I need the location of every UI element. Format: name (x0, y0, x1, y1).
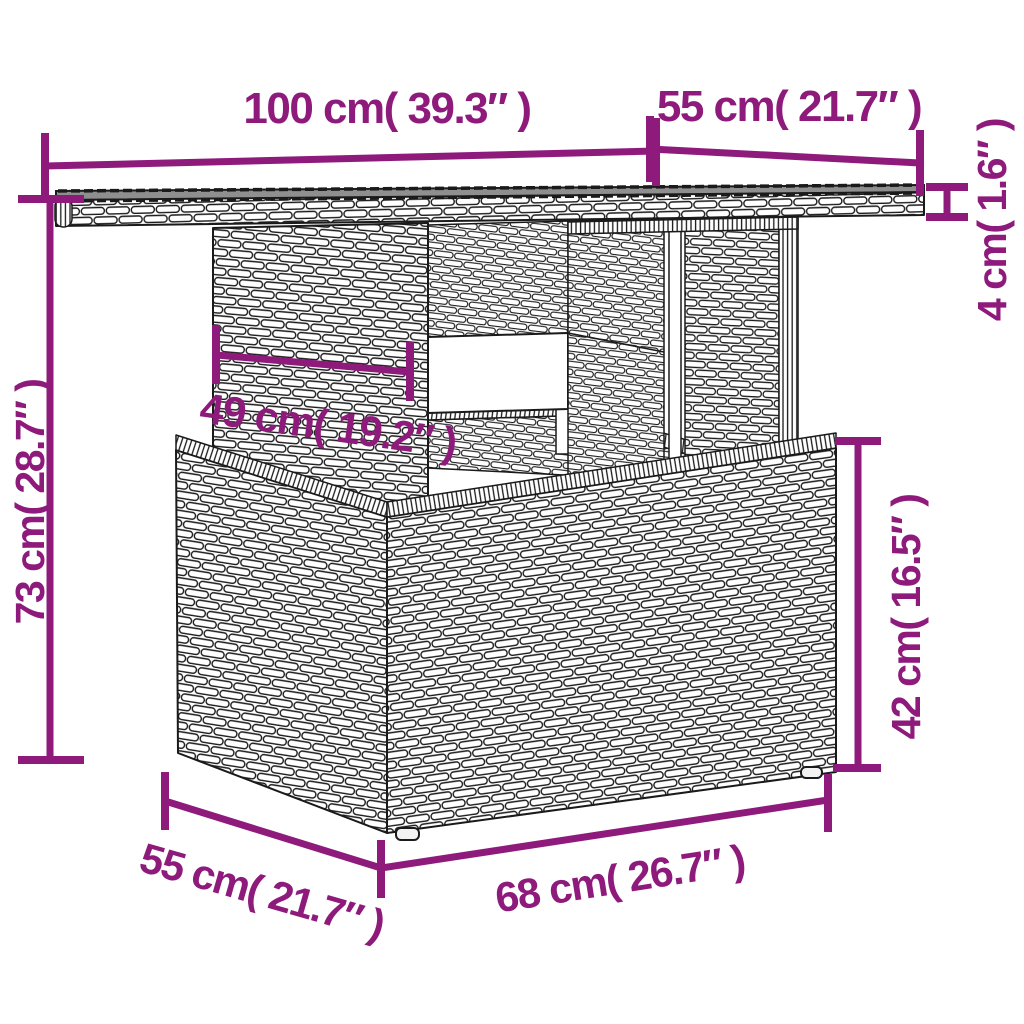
dim-overall-height: 73 cm( 28.7″ ) (7, 199, 84, 760)
pedestal-upper-band (428, 221, 568, 337)
dimension-line (650, 149, 920, 163)
foot-left (396, 828, 419, 840)
foot-right (801, 767, 822, 778)
dim-base-height: 42 cm( 16.5″ ) (833, 441, 929, 768)
pedestal-right-column (685, 217, 779, 461)
dim-tabletop-width: 100 cm( 39.3″ ) (45, 84, 656, 201)
dim-label-overall-height: 73 cm( 28.7″ ) (7, 380, 53, 625)
dimension-line (45, 151, 656, 166)
dim-tabletop-depth: 55 cm( 21.7″ ) (650, 82, 921, 196)
screenshot-canvas: 100 cm( 39.3″ ) 55 cm( 21.7″ ) 4 cm( 1.6… (0, 0, 1024, 1024)
column-gap-post (669, 222, 681, 460)
dim-label-tabletop-depth: 55 cm( 21.7″ ) (657, 82, 921, 131)
pedestal-side-panel (568, 219, 664, 477)
dim-label-tabletop-thickness: 4 cm( 1.6″ ) (969, 119, 1015, 321)
dimension-diagram: 100 cm( 39.3″ ) 55 cm( 21.7″ ) 4 cm( 1.6… (0, 0, 1024, 1024)
pedestal-window (428, 333, 568, 413)
garden-table-illustration (55, 185, 924, 840)
dim-label-base-depth: 55 cm( 21.7″ ) (135, 834, 389, 948)
right-column-edge-roll (779, 217, 798, 456)
dim-label-base-height: 42 cm( 16.5″ ) (883, 495, 929, 740)
dim-tabletop-thickness: 4 cm( 1.6″ ) (926, 119, 1015, 321)
dim-label-tabletop-width: 100 cm( 39.3″ ) (243, 84, 530, 133)
